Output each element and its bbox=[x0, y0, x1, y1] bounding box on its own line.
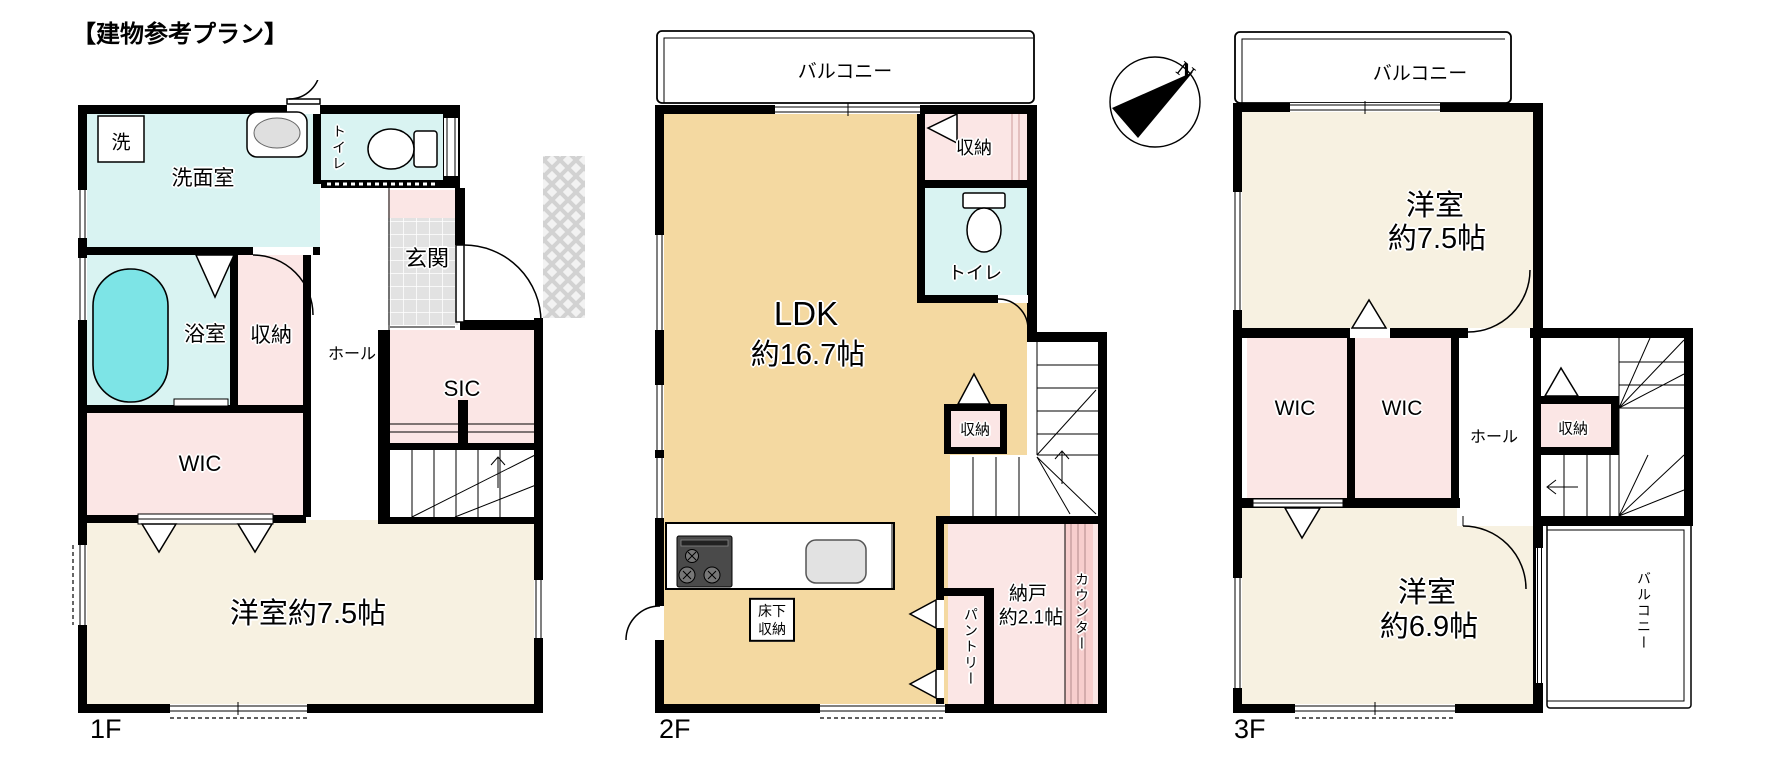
floor-label-2f: 2F bbox=[659, 714, 691, 745]
label-hall-1f: ホール bbox=[328, 340, 376, 364]
label-bedroom-1f: 洋室約7.5帖 bbox=[230, 590, 386, 632]
floor-plan-1f bbox=[60, 80, 600, 750]
label-wic-left: WIC bbox=[1275, 397, 1316, 421]
floor-label-3f: 3F bbox=[1234, 714, 1266, 745]
floor-plan-2f bbox=[570, 20, 1130, 750]
label-toilet-1f: トイレ bbox=[329, 124, 349, 172]
label-nando-2: 約2.1帖 bbox=[999, 603, 1063, 630]
label-nando-1: 納戸 bbox=[1009, 579, 1047, 606]
floor-plan-3f bbox=[1200, 20, 1765, 750]
label-senmen: 洗面室 bbox=[172, 162, 235, 192]
floor-plan-canvas: N 【建物参考プラン】 洗 洗面室 トイレ 浴室 収納 ホール 玄関 SIC W… bbox=[0, 0, 1765, 778]
label-ldk-2: 約16.7帖 bbox=[751, 331, 865, 373]
label-storage-1f: 収納 bbox=[250, 319, 292, 349]
label-balcony-3f-side: バルコニー bbox=[1634, 571, 1654, 651]
underfloor-storage-box: 床下 収納 bbox=[749, 598, 795, 642]
label-balcony-2f: バルコニー bbox=[798, 57, 893, 84]
label-sic: SIC bbox=[444, 376, 481, 402]
label-bath: 浴室 bbox=[184, 318, 226, 348]
label-washer: 洗 bbox=[111, 128, 130, 155]
label-counter: カウンター bbox=[1072, 572, 1092, 652]
plan-title: 【建物参考プラン】 bbox=[72, 14, 288, 49]
label-genkan: 玄関 bbox=[405, 241, 449, 273]
kitchen-counter bbox=[666, 523, 894, 589]
label-storage-2f-mid: 収納 bbox=[960, 419, 990, 440]
floor-label-1f: 1F bbox=[90, 714, 122, 745]
sink-icon bbox=[247, 112, 307, 157]
label-storage-2f-top: 収納 bbox=[956, 134, 992, 160]
label-storage-3f: 収納 bbox=[1558, 418, 1588, 439]
label-bedroom69-2: 約6.9帖 bbox=[1380, 603, 1478, 645]
label-underfloor-2: 収納 bbox=[758, 621, 786, 637]
label-underfloor-1: 床下 bbox=[758, 603, 786, 619]
label-toilet-2f: トイレ bbox=[948, 259, 1002, 285]
toilet-icon-1f bbox=[368, 129, 437, 169]
genkan-closet bbox=[388, 190, 458, 218]
label-pantry: パントリー bbox=[961, 607, 981, 687]
compass: N bbox=[1105, 52, 1205, 152]
label-hall-3f: ホール bbox=[1470, 423, 1518, 447]
label-bedroom75-2: 約7.5帖 bbox=[1388, 215, 1486, 257]
bathtub-icon bbox=[93, 269, 168, 402]
label-ldk-1: LDK bbox=[774, 295, 838, 333]
label-balcony-3f-top: バルコニー bbox=[1373, 59, 1468, 86]
balcony-3f-side bbox=[1547, 523, 1691, 708]
label-wic-right: WIC bbox=[1382, 397, 1423, 421]
label-wic-1f: WIC bbox=[179, 451, 222, 477]
sink-icon-2f bbox=[806, 540, 866, 583]
